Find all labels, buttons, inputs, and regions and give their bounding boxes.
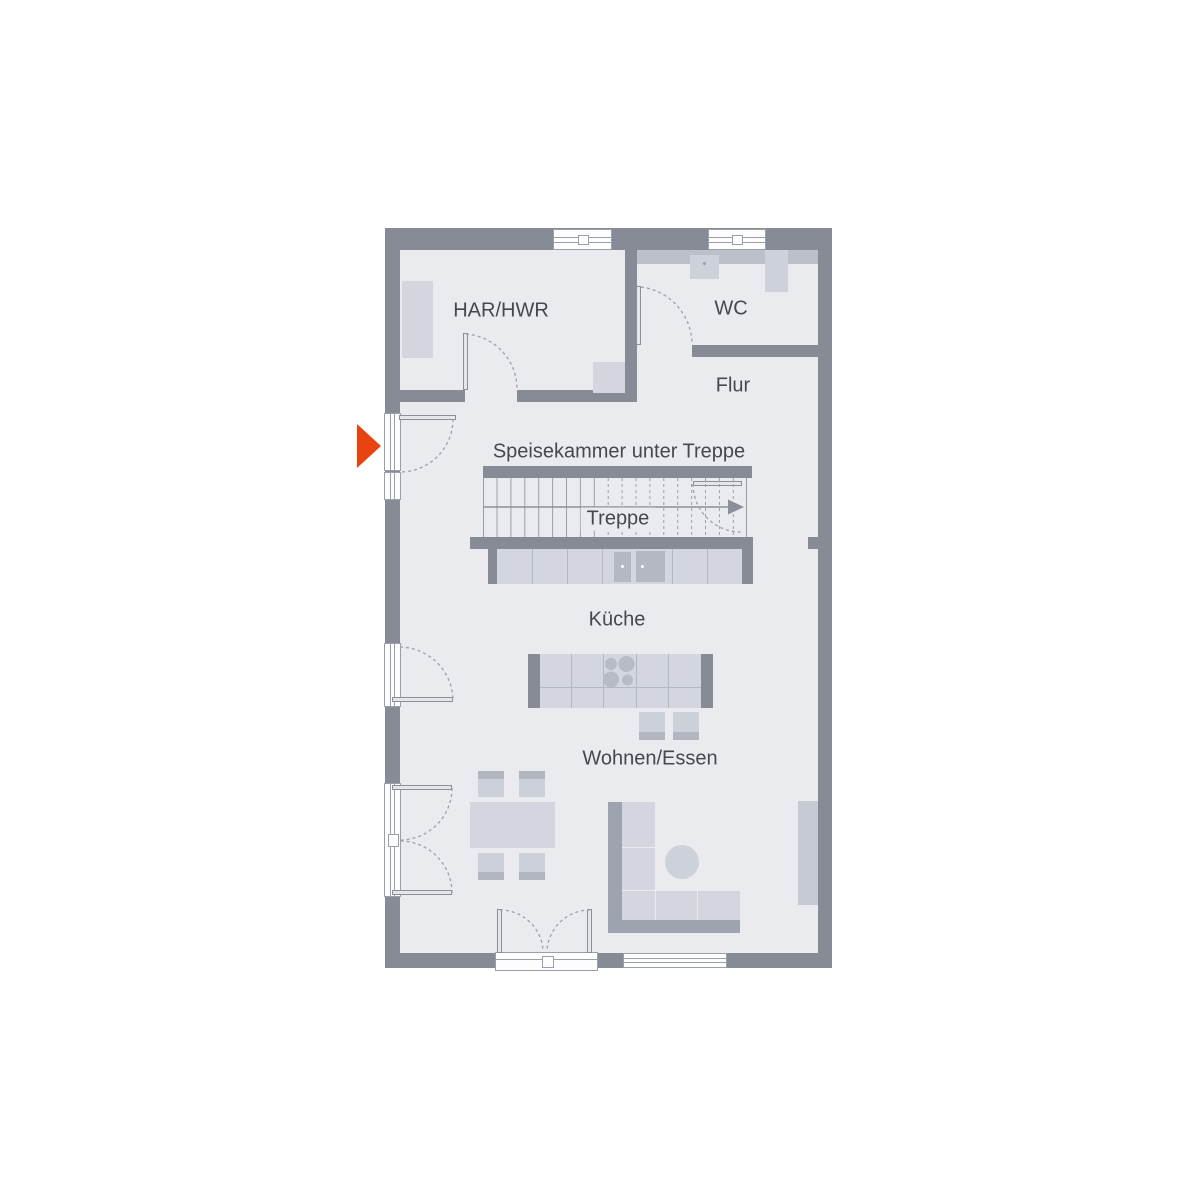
french-door-left-leaf-top: [392, 785, 452, 790]
dining-chair-top-left: [478, 771, 504, 797]
floorplan-canvas: HAR/HWR WC Flur Speisekammer unter Trepp…: [0, 0, 1200, 1200]
dining-table: [470, 802, 555, 848]
dining-chair-bottom-right: [519, 853, 545, 880]
har-door-leaf: [463, 333, 468, 390]
wall-har-bottom-left: [400, 390, 465, 402]
wc-door-leaf: [636, 286, 641, 345]
wc-sink: [690, 255, 719, 279]
window-top-right: [708, 229, 766, 250]
room-label-wc: WC: [714, 298, 747, 321]
terrace-door-leaf: [392, 697, 453, 702]
sofa-back-vertical: [608, 802, 622, 933]
speisekammer-door-leaf: [693, 481, 742, 486]
stool-2: [673, 712, 699, 740]
wc-toilet: [765, 250, 788, 292]
entrance-sidelight: [384, 472, 401, 500]
sofa-cushion-1: [622, 802, 655, 847]
sofa-cushion-4: [698, 891, 740, 920]
wall-counter-pier-right: [742, 549, 753, 584]
island-end-panel-right: [701, 654, 713, 708]
sofa-cushion-corner: [622, 891, 655, 920]
island-end-panel-left: [528, 654, 540, 708]
kitchen-appliance-fridge: [636, 551, 665, 582]
dining-chair-top-right: [519, 771, 545, 797]
har-cabinet: [593, 362, 625, 393]
wall-outer-bottom: [385, 953, 832, 968]
window-top-left: [553, 229, 612, 250]
sofa-cushion-3: [656, 891, 697, 920]
room-label-flur: Flur: [716, 375, 750, 398]
entrance-door-frame: [384, 413, 401, 471]
entrance-arrow-icon: [357, 424, 381, 468]
har-washer: [402, 281, 433, 358]
room-label-speisekammer: Speisekammer unter Treppe: [493, 441, 745, 464]
sofa-back-horizontal: [608, 920, 740, 933]
wall-stairs-top: [483, 466, 752, 478]
wc-counter: [637, 250, 818, 264]
french-door-bottom-leaf-right: [587, 909, 592, 953]
french-door-left-leaf-bottom: [392, 890, 452, 895]
french-door-bottom-sill: [495, 952, 598, 971]
coffee-table: [665, 845, 699, 879]
french-door-bottom-leaf-left: [497, 909, 502, 953]
wall-understairs: [470, 537, 753, 549]
room-label-kueche: Küche: [589, 609, 646, 632]
kitchen-appliance-oven: [614, 552, 631, 582]
wall-stub-right: [808, 537, 818, 549]
french-door-left-frame: [384, 783, 401, 897]
kitchen-island: [528, 654, 713, 708]
wall-wc-bottom: [692, 345, 818, 357]
entrance-door-leaf: [399, 415, 456, 420]
wall-outer-right: [818, 228, 832, 968]
window-bottom: [623, 953, 727, 968]
sofa-cushion-2: [622, 848, 655, 890]
room-label-har-hwr: HAR/HWR: [453, 300, 549, 323]
room-label-wohnen-essen: Wohnen/Essen: [582, 748, 717, 771]
sideboard: [798, 801, 818, 905]
dining-chair-bottom-left: [478, 853, 504, 880]
room-label-treppe: Treppe: [581, 508, 656, 531]
stool-1: [639, 712, 665, 740]
